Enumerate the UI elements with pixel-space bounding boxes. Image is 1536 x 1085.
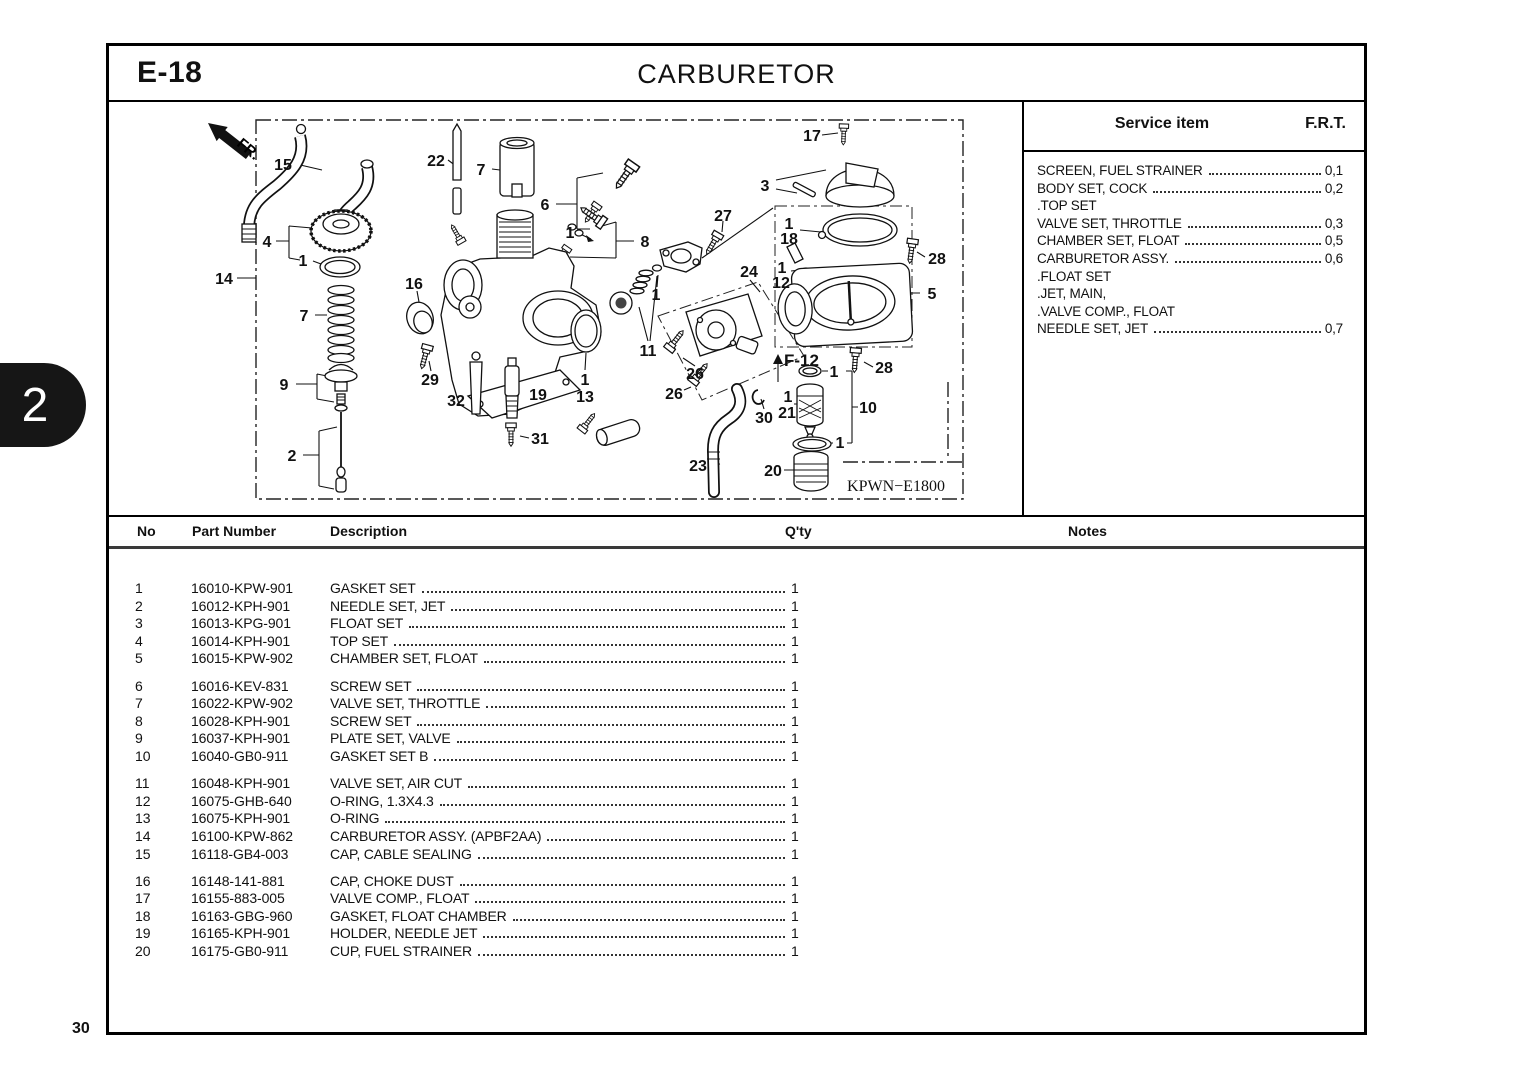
table-row: 1616148-141-881CAP, CHOKE DUST1 [109, 873, 809, 891]
dotted-leader [417, 689, 785, 691]
diagram-callout: 28 [928, 251, 946, 268]
part-qty: 1 [791, 633, 809, 649]
dotted-leader [1175, 261, 1321, 263]
part-qty: 1 [791, 828, 809, 844]
diagram-callout: 14 [215, 271, 233, 288]
dotted-leader [483, 936, 785, 938]
dotted-leader [451, 609, 785, 611]
col-header-notes: Notes [1068, 523, 1107, 539]
part-ref-no: 19 [135, 925, 191, 941]
table-row: 1716155-883-005VALVE COMP., FLOAT1 [109, 890, 809, 908]
part-number: 16037-KPH-901 [191, 730, 330, 746]
part-number: 16165-KPH-901 [191, 925, 330, 941]
diagram-callout: 26 [665, 386, 683, 403]
diagram-callout: 5 [928, 286, 937, 303]
service-item: BODY SET, COCK0,2 [1037, 181, 1343, 199]
part-description: GASKET SET B [330, 748, 428, 764]
part-qty: 1 [791, 925, 809, 941]
diagram-callout: 16 [405, 276, 423, 293]
diagram-area: FR. [109, 100, 1022, 515]
service-item-name: BODY SET, COCK [1037, 181, 1147, 196]
part-number: 16028-KPH-901 [191, 713, 330, 729]
part-description: NEEDLE SET, JET [330, 598, 445, 614]
part-number: 16015-KPW-902 [191, 650, 330, 666]
part-qty: 1 [791, 650, 809, 666]
table-row: 1316075-KPH-901O-RING1 [109, 810, 809, 828]
diagram-callout: 26 [686, 366, 704, 383]
part-ref-no: 20 [135, 943, 191, 959]
service-item-frt: 0,6 [1325, 251, 1343, 266]
dotted-leader [434, 759, 785, 761]
part-ref-no: 10 [135, 748, 191, 764]
service-item-name: .JET, MAIN, [1037, 286, 1106, 301]
service-item-name: CHAMBER SET, FLOAT [1037, 233, 1179, 248]
service-item: .JET, MAIN, [1037, 286, 1343, 304]
service-item-name: NEEDLE SET, JET [1037, 321, 1148, 336]
dotted-leader [513, 919, 785, 921]
diagram-callout: 3 [761, 178, 770, 195]
service-item: NEEDLE SET, JET0,7 [1037, 321, 1343, 339]
part-qty: 1 [791, 846, 809, 862]
table-row: 1016040-GB0-911GASKET SET B1 [109, 748, 809, 766]
service-item-frt: 0,3 [1325, 216, 1343, 231]
diagram-callout: 31 [531, 431, 549, 448]
table-row: 616016-KEV-831SCREW SET1 [109, 678, 809, 696]
table-row: 2016175-GB0-911CUP, FUEL STRAINER1 [109, 943, 809, 961]
tiny-arrow-icon [586, 235, 594, 242]
part-shapes [242, 124, 918, 492]
service-item: VALVE SET, THROTTLE0,3 [1037, 216, 1343, 234]
service-item-name: VALVE SET, THROTTLE [1037, 216, 1182, 231]
service-item-frt: 0,5 [1325, 233, 1343, 248]
service-item-panel: Service item F.R.T. SCREEN, FUEL STRAINE… [1022, 100, 1364, 515]
part-qty: 1 [791, 943, 809, 959]
part-qty: 1 [791, 598, 809, 614]
fr-label: FR. [233, 135, 262, 164]
table-row: 1916165-KPH-901HOLDER, NEEDLE JET1 [109, 925, 809, 943]
part-qty: 1 [791, 793, 809, 809]
diagram-callout: 7 [300, 308, 309, 325]
part-number: 16022-KPW-902 [191, 695, 330, 711]
service-item: .VALVE COMP., FLOAT [1037, 304, 1343, 322]
part-qty: 1 [791, 580, 809, 596]
part-qty: 1 [791, 748, 809, 764]
diagram-callout: 12 [772, 275, 790, 292]
service-item-column-header: Service item [1072, 115, 1252, 133]
table-row: 1216075-GHB-640O-RING, 1.3X4.31 [109, 793, 809, 811]
page-header: E-18 CARBURETOR [109, 46, 1364, 102]
service-item-name: .VALVE COMP., FLOAT [1037, 304, 1175, 319]
dotted-leader [440, 804, 785, 806]
diagram-callout: 1 [566, 225, 575, 242]
service-item-frt: 0,7 [1325, 321, 1343, 336]
service-panel-header: Service item F.R.T. [1024, 100, 1364, 152]
part-qty: 1 [791, 695, 809, 711]
part-qty: 1 [791, 615, 809, 631]
section-tab-label: 2 [22, 378, 49, 433]
part-ref-no: 17 [135, 890, 191, 906]
table-row-group: 1116048-KPH-901VALVE SET, AIR CUT1121607… [109, 775, 809, 863]
part-number: 16014-KPH-901 [191, 633, 330, 649]
diagram-callout: 4 [263, 234, 272, 251]
part-description: CUP, FUEL STRAINER [330, 943, 472, 959]
service-item: CARBURETOR ASSY.0,6 [1037, 251, 1343, 269]
part-description: PLATE SET, VALVE [330, 730, 451, 746]
figure-code-label: KPWN−E1800 [847, 478, 945, 495]
diagram-callout: 28 [875, 360, 893, 377]
col-header-description: Description [330, 523, 407, 539]
part-qty: 1 [791, 775, 809, 791]
table-row: 1516118-GB4-003CAP, CABLE SEALING1 [109, 846, 809, 864]
table-row-group: 1616148-141-881CAP, CHOKE DUST11716155-8… [109, 873, 809, 961]
dotted-leader [460, 884, 785, 886]
part-ref-no: 3 [135, 615, 191, 631]
page-title: CARBURETOR [109, 59, 1364, 90]
service-item-name: SCREEN, FUEL STRAINER [1037, 163, 1203, 178]
part-number: 16148-141-881 [191, 873, 330, 889]
diagram-callout: 1 [652, 287, 661, 304]
part-description: O-RING, 1.3X4.3 [330, 793, 434, 809]
part-description: CAP, CHOKE DUST [330, 873, 454, 889]
diagram-callout: 11 [640, 343, 657, 360]
diagram-callout: 13 [576, 389, 594, 406]
diagram-callout: 21 [778, 405, 796, 422]
table-row: 716022-KPW-902VALVE SET, THROTTLE1 [109, 695, 809, 713]
dotted-leader [1153, 191, 1321, 193]
part-number: 16163-GBG-960 [191, 908, 330, 924]
diagram-callout: 10 [859, 400, 877, 417]
part-description: CAP, CABLE SEALING [330, 846, 472, 862]
diagram-callout: 29 [421, 372, 439, 389]
col-header-no: No [137, 523, 156, 539]
dotted-leader [1188, 226, 1321, 228]
table-row: 816028-KPH-901SCREW SET1 [109, 713, 809, 731]
dotted-leader [547, 839, 785, 841]
table-row: 416014-KPH-901TOP SET1 [109, 633, 809, 651]
part-number: 16075-KPH-901 [191, 810, 330, 826]
part-ref-no: 8 [135, 713, 191, 729]
part-description: CHAMBER SET, FLOAT [330, 650, 478, 666]
part-number: 16175-GB0-911 [191, 943, 330, 959]
diagram-callout: 20 [764, 463, 782, 480]
part-ref-no: 12 [135, 793, 191, 809]
part-qty: 1 [791, 713, 809, 729]
table-row: 1116048-KPH-901VALVE SET, AIR CUT1 [109, 775, 809, 793]
diagram-callout: 1 [830, 364, 839, 381]
diagram-callout: 7 [477, 162, 486, 179]
part-description: FLOAT SET [330, 615, 403, 631]
part-description: SCREW SET [330, 713, 411, 729]
part-description: GASKET SET [330, 580, 416, 596]
diagram-callout: 24 [740, 264, 758, 281]
dotted-leader [422, 591, 785, 593]
part-ref-no: 13 [135, 810, 191, 826]
dotted-leader [1185, 243, 1320, 245]
diagram-callout: 22 [427, 153, 445, 170]
dotted-leader [417, 724, 785, 726]
f12-arrow-icon [773, 354, 783, 364]
part-description: VALVE SET, THROTTLE [330, 695, 480, 711]
part-description: TOP SET [330, 633, 388, 649]
service-item-frt: 0,1 [1325, 163, 1343, 178]
inset-ref-label: F-12 [784, 351, 819, 370]
table-row: 116010-KPW-901GASKET SET1 [109, 580, 809, 598]
part-description: VALVE COMP., FLOAT [330, 890, 469, 906]
dotted-leader [475, 901, 785, 903]
diagram-callout: 32 [447, 393, 465, 410]
part-qty: 1 [791, 810, 809, 826]
part-number: 16075-GHB-640 [191, 793, 330, 809]
part-qty: 1 [791, 730, 809, 746]
diagram-callout: 2 [288, 448, 297, 465]
diagram-callout: 19 [529, 387, 547, 404]
diagram-callout: 6 [541, 197, 550, 214]
part-ref-no: 11 [135, 775, 191, 791]
dotted-leader [409, 626, 785, 628]
diagram-callout: 30 [755, 410, 773, 427]
dotted-leader [468, 786, 785, 788]
col-header-qty: Q'ty [785, 523, 812, 539]
part-ref-no: 15 [135, 846, 191, 862]
part-qty: 1 [791, 678, 809, 694]
exploded-diagram: FR. [109, 100, 1022, 515]
table-row: 516015-KPW-902CHAMBER SET, FLOAT1 [109, 650, 809, 668]
part-ref-no: 5 [135, 650, 191, 666]
part-ref-no: 14 [135, 828, 191, 844]
part-ref-no: 1 [135, 580, 191, 596]
part-number: 16100-KPW-862 [191, 828, 330, 844]
part-qty: 1 [791, 908, 809, 924]
diagram-callout: 15 [274, 157, 292, 174]
dotted-leader [385, 821, 785, 823]
part-ref-no: 6 [135, 678, 191, 694]
dotted-leader [478, 857, 785, 859]
service-item-name: CARBURETOR ASSY. [1037, 251, 1169, 266]
frt-column-header: F.R.T. [1305, 115, 1346, 133]
service-item: .FLOAT SET [1037, 269, 1343, 287]
part-description: GASKET, FLOAT CHAMBER [330, 908, 507, 924]
part-number: 16048-KPH-901 [191, 775, 330, 791]
part-ref-no: 7 [135, 695, 191, 711]
diagram-callout: 27 [714, 208, 732, 225]
page-frame: E-18 CARBURETOR FR. [106, 43, 1367, 1035]
diagram-callout: 1 [581, 372, 590, 389]
part-ref-no: 2 [135, 598, 191, 614]
dotted-leader [1209, 173, 1321, 175]
service-item-name: .FLOAT SET [1037, 269, 1111, 284]
part-number: 16013-KPG-901 [191, 615, 330, 631]
part-qty: 1 [791, 873, 809, 889]
part-ref-no: 18 [135, 908, 191, 924]
service-item-list: SCREEN, FUEL STRAINER0,1BODY SET, COCK0,… [1024, 152, 1364, 339]
diagram-callout: 23 [689, 458, 707, 475]
diagram-callout: 18 [780, 231, 798, 248]
part-description: VALVE SET, AIR CUT [330, 775, 462, 791]
service-item-name: .TOP SET [1037, 198, 1096, 213]
diagram-callout: 8 [641, 234, 650, 251]
dotted-leader [478, 954, 785, 956]
parts-table-body: 116010-KPW-901GASKET SET1216012-KPH-901N… [109, 549, 809, 970]
service-item: SCREEN, FUEL STRAINER0,1 [1037, 163, 1343, 181]
part-qty: 1 [791, 890, 809, 906]
dotted-leader [457, 741, 785, 743]
diagram-callout: 1 [836, 435, 845, 452]
table-row: 1416100-KPW-862CARBURETOR ASSY. (APBF2AA… [109, 828, 809, 846]
dotted-leader [394, 644, 785, 646]
part-number: 16118-GB4-003 [191, 846, 330, 862]
diagram-callout: 1 [299, 253, 308, 270]
service-item-frt: 0,2 [1325, 181, 1343, 196]
service-item: CHAMBER SET, FLOAT0,5 [1037, 233, 1343, 251]
col-header-part-number: Part Number [192, 523, 276, 539]
table-row-group: 116010-KPW-901GASKET SET1216012-KPH-901N… [109, 580, 809, 668]
section-tab: 2 [0, 363, 86, 447]
table-row: 316013-KPG-901FLOAT SET1 [109, 615, 809, 633]
table-row: 916037-KPH-901PLATE SET, VALVE1 [109, 730, 809, 748]
table-row: 1816163-GBG-960GASKET, FLOAT CHAMBER1 [109, 908, 809, 926]
part-number: 16040-GB0-911 [191, 748, 330, 764]
part-ref-no: 16 [135, 873, 191, 889]
part-description: O-RING [330, 810, 379, 826]
part-description: CARBURETOR ASSY. (APBF2AA) [330, 828, 541, 844]
diagram-callout: 17 [803, 128, 821, 145]
part-description: SCREW SET [330, 678, 411, 694]
parts-table-header: No Part Number Description Q'ty Notes [109, 515, 1364, 549]
part-number: 16155-883-005 [191, 890, 330, 906]
dotted-leader [484, 661, 785, 663]
table-row: 216012-KPH-901NEEDLE SET, JET1 [109, 598, 809, 616]
part-number: 16016-KEV-831 [191, 678, 330, 694]
page-number: 30 [72, 1020, 90, 1038]
diagram-callout: 1 [784, 389, 793, 406]
part-ref-no: 9 [135, 730, 191, 746]
dotted-leader [486, 706, 785, 708]
part-description: HOLDER, NEEDLE JET [330, 925, 477, 941]
part-ref-no: 4 [135, 633, 191, 649]
part-number: 16012-KPH-901 [191, 598, 330, 614]
dotted-leader [1154, 331, 1321, 333]
diagram-callout: 9 [280, 377, 289, 394]
service-item: .TOP SET [1037, 198, 1343, 216]
table-row-group: 616016-KEV-831SCREW SET1716022-KPW-902VA… [109, 678, 809, 766]
part-number: 16010-KPW-901 [191, 580, 330, 596]
